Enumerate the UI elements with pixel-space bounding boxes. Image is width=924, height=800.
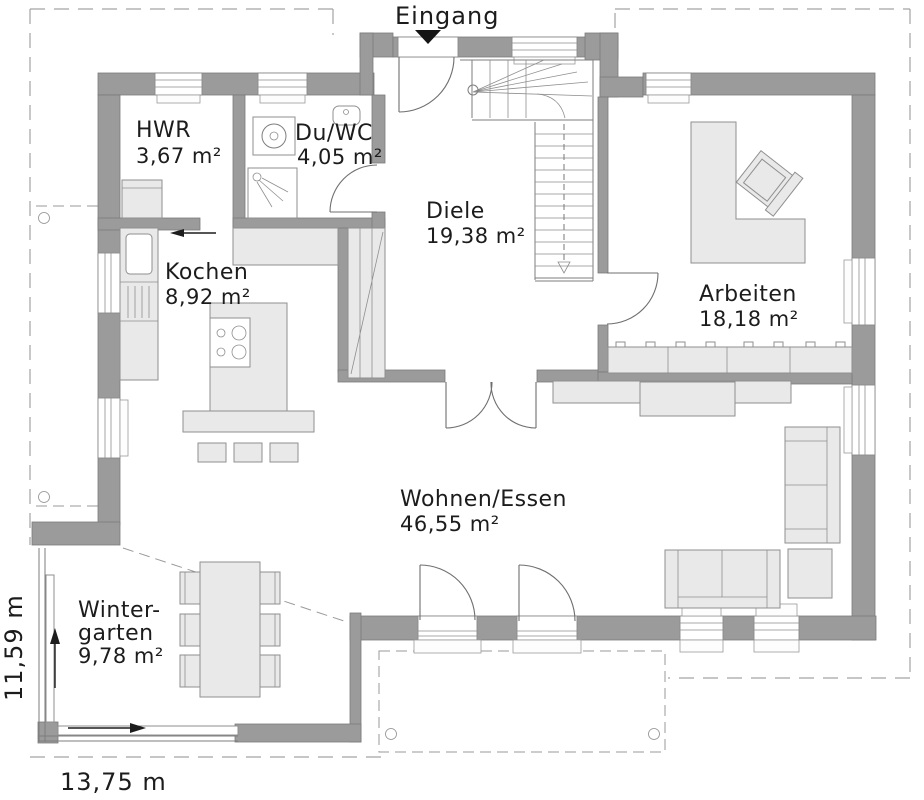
window-kitchen-2	[98, 398, 128, 458]
terrace-door-2	[519, 565, 575, 621]
terrace-door-1	[420, 565, 475, 620]
desk-chair	[734, 148, 803, 217]
room-area-arbeiten: 18,18 m²	[699, 307, 799, 331]
room-area-kochen: 8,92 m²	[165, 285, 251, 309]
kitchen-sink	[126, 234, 152, 274]
terrace-post	[386, 729, 397, 740]
sofa-right	[785, 427, 840, 543]
island-bar	[183, 411, 314, 432]
dining-table	[200, 562, 260, 697]
bar-stool	[234, 443, 262, 462]
stair-direction-marker	[558, 262, 570, 273]
sideboard-arbeiten	[608, 342, 852, 373]
lowboard-deep	[640, 382, 735, 416]
wintergarten-room	[180, 562, 280, 697]
room-label-wintergarten-1: Winter-	[78, 598, 161, 623]
entrance-label: Eingang	[395, 2, 499, 30]
washer-dryer	[253, 117, 295, 155]
tall-cabinet	[348, 228, 385, 378]
window-arbeiten-top	[646, 73, 691, 103]
wohnen-room	[553, 381, 840, 608]
terrace-post	[649, 729, 660, 740]
terrace-post	[39, 213, 50, 224]
window-arbeiten-right	[844, 258, 875, 325]
washing-machine	[122, 180, 162, 218]
dimension-width: 13,75 m	[60, 768, 167, 796]
bar-stool	[270, 443, 298, 462]
floor-plan-page: Eingang HWR 3,67 m² Du/WC 4,05 m² Diele …	[0, 0, 924, 800]
room-label-hwr: HWR	[136, 118, 191, 143]
entrance-door	[399, 57, 454, 112]
room-area-hwr: 3,67 m²	[136, 144, 222, 168]
arbeiten-room	[608, 122, 852, 373]
dimension-height: 11,59 m	[0, 594, 28, 701]
stair-handrail	[537, 94, 565, 118]
room-label-wohnen: Wohnen/Essen	[400, 487, 567, 512]
double-door-wohnen	[446, 382, 536, 428]
terrace-post	[39, 492, 50, 503]
terrace-door-opening-2	[513, 616, 581, 653]
room-area-wintergarten: 9,78 m²	[78, 644, 164, 668]
kitchen-island	[183, 303, 314, 432]
floor-plan-drawing: Eingang HWR 3,67 m² Du/WC 4,05 m² Diele …	[0, 0, 924, 800]
window-wohnen-bottom-1	[680, 604, 723, 652]
window-hwr	[155, 73, 202, 103]
sofa-bottom	[665, 550, 780, 608]
room-label-kochen: Kochen	[165, 260, 248, 285]
kitchen-counter-top	[233, 228, 338, 265]
duwc-door	[330, 165, 377, 212]
window-wohnen-right	[844, 385, 875, 455]
arbeiten-door	[607, 273, 658, 324]
bar-stool	[198, 443, 226, 462]
terrace-door-opening-1	[414, 616, 481, 653]
cooktop	[210, 318, 250, 367]
window-duwc	[258, 73, 307, 103]
shower	[248, 168, 297, 218]
room-label-diele: Diele	[426, 199, 485, 224]
room-label-arbeiten: Arbeiten	[699, 282, 797, 307]
room-label-duwc: Du/WC	[295, 121, 373, 146]
hwr-room	[122, 180, 162, 218]
room-area-wohnen: 46,55 m²	[400, 512, 500, 536]
room-area-diele: 19,38 m²	[426, 224, 526, 248]
side-table	[788, 549, 832, 598]
window-wohnen-bottom-2	[754, 604, 799, 652]
room-label-wintergarten-2: garten	[78, 621, 154, 646]
room-area-duwc: 4,05 m²	[297, 145, 383, 169]
